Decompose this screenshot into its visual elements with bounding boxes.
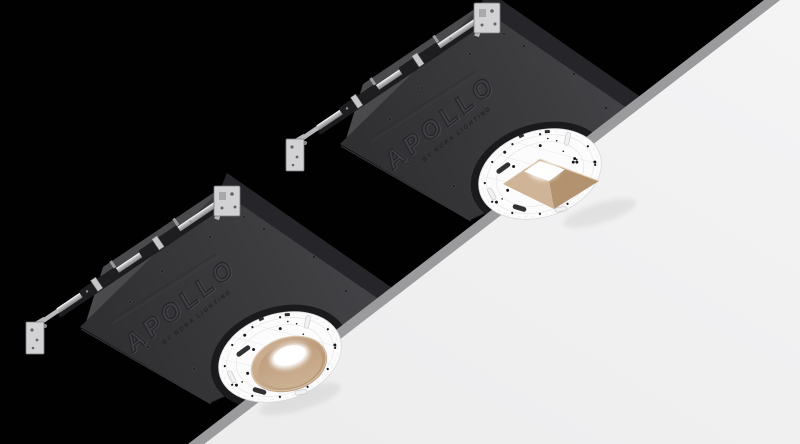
product-render-stage: APOLLO APOLLO BY NORA LIGHTING	[0, 0, 800, 444]
apollo-downlight-render: APOLLO APOLLO BY NORA LIGHTING	[0, 0, 800, 444]
